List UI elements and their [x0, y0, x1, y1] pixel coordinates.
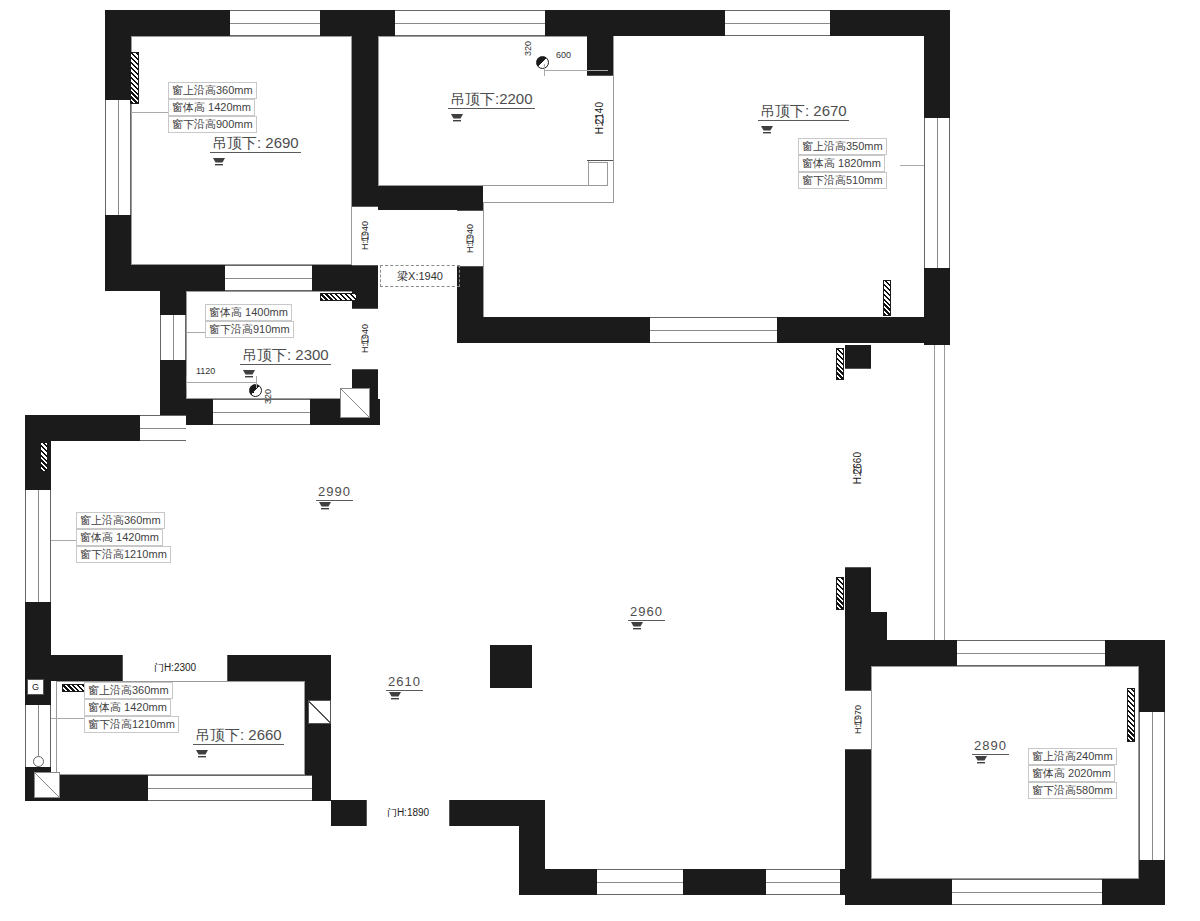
dim-row: 窗上沿高350mm [798, 138, 887, 155]
ceiling-label-text: 吊顶下: 2690 [210, 134, 301, 153]
column [490, 645, 532, 688]
opening [650, 317, 777, 343]
ceiling-lamp-icon [242, 365, 256, 375]
dim-row: 窗下沿高510mm [798, 172, 887, 189]
wall-corner-step [845, 612, 887, 640]
door-height-label: 门H:1940 [464, 224, 477, 253]
ceiling-label-text: 吊顶下: 2670 [758, 102, 849, 121]
door-opening-1940-b: 门H:1940 [457, 210, 483, 267]
ceiling-label-text: 吊顶下:2200 [448, 90, 535, 109]
leader-line [51, 540, 76, 541]
door-opening-2140: 门H:2140 [587, 75, 613, 161]
leader-line [51, 718, 84, 719]
ceiling-lamp-icon [212, 153, 226, 163]
door-height-label: 门H:1890 [387, 806, 429, 820]
dim-row: 窗下沿高900mm [168, 116, 257, 133]
leader-line [131, 112, 168, 113]
window-dimension-box: 窗上沿高350mm 窗体高 1820mm 窗下沿高510mm [798, 138, 887, 189]
door-height-label: 门H:2660 [851, 452, 865, 484]
shaft-symbol [308, 700, 331, 724]
ceiling-lamp-icon [450, 109, 464, 119]
window [952, 879, 1102, 905]
leader-line [186, 332, 205, 333]
window [957, 640, 1105, 666]
downlight-icon [536, 56, 549, 69]
door-height-label: 门H:2300 [154, 661, 196, 675]
opening [213, 399, 310, 425]
window [597, 869, 683, 895]
leader-line [900, 165, 924, 166]
corridor-glass-line [934, 343, 935, 640]
window [725, 10, 830, 36]
dim-row: 窗下沿高1210mm [84, 716, 179, 733]
opening [140, 415, 186, 441]
door-opening-1940-a: 门H:1940 [352, 206, 378, 266]
dim-320: 320 [523, 28, 533, 56]
beam-label: 梁X:1940 [380, 265, 460, 287]
wall-room2200-bottom [378, 186, 483, 210]
window [148, 775, 312, 801]
dim-line [186, 382, 257, 383]
height-label-2990: 2990 [316, 484, 353, 499]
radiator-hatch [883, 280, 891, 316]
ceiling-lamp-icon [974, 753, 988, 763]
beam-text: 梁X:1940 [397, 269, 443, 284]
dim-tick [256, 376, 257, 388]
ceiling-lamp-icon [760, 121, 774, 131]
dim-row: 窗上沿高360mm [84, 682, 173, 699]
dim-row: 窗体高 1820mm [798, 155, 885, 172]
wall-bottomright-left [845, 640, 871, 905]
window-dimension-box: 窗上沿高360mm 窗体高 1420mm 窗下沿高1210mm [76, 512, 171, 563]
radiator-hatch [1127, 688, 1135, 742]
ceiling-label-room2670: 吊顶下: 2670 [758, 102, 849, 121]
door-height-label: 门H:1970 [852, 705, 865, 734]
floor-plan: 门H:2140 门H:1940 门H:1940 门H:1940 门H:2300 … [0, 0, 1200, 921]
ceiling-label-room2300: 吊顶下: 2300 [240, 346, 331, 365]
corridor-glass-line [944, 343, 945, 640]
dim-row: 窗体高 1420mm [76, 529, 163, 546]
ceiling-lamp-icon [630, 619, 644, 629]
window [1139, 712, 1165, 860]
gas-marker-label: G [32, 682, 39, 692]
dim-row: 窗体高 1400mm [205, 304, 292, 321]
window-dimension-box: 窗上沿高360mm 窗体高 1420mm 窗下沿高900mm [168, 82, 257, 133]
dim-row: 窗体高 1420mm [84, 699, 171, 716]
height-label-2960: 2960 [628, 604, 665, 619]
dim-row: 窗下沿高910mm [205, 321, 294, 338]
ceiling-lamp-icon [388, 689, 402, 699]
door-opening-2300: 门H:2300 [122, 655, 228, 681]
dim-tick [544, 64, 545, 76]
circle-symbol [33, 756, 44, 767]
ceiling-label-room2200: 吊顶下:2200 [448, 90, 535, 109]
dim-tick [186, 376, 187, 388]
room-edge-line [613, 36, 614, 202]
corner-symbol [34, 772, 60, 798]
window [924, 118, 950, 268]
door-height-label: 门H:2140 [593, 102, 607, 134]
radiator-hatch [40, 442, 48, 472]
ceiling-label-bottomleft: 吊顶下: 2660 [193, 726, 284, 745]
door-opening-1940-c: 门H:1940 [352, 308, 378, 370]
ceiling-label-text: 吊顶下: 2300 [240, 346, 331, 365]
dim-row: 窗体高 1420mm [168, 99, 255, 116]
dim-320: 320 [263, 376, 273, 404]
ceiling-lamp-icon [195, 745, 209, 755]
window [766, 869, 840, 895]
ceiling-lamp-icon [318, 499, 332, 509]
radiator-hatch [836, 348, 844, 380]
window [25, 490, 51, 602]
radiator-hatch [320, 293, 357, 301]
door-leaf [588, 162, 608, 186]
height-label-2610: 2610 [386, 674, 423, 689]
dim-row: 窗下沿高580mm [1028, 782, 1117, 799]
dim-row: 窗上沿高360mm [168, 82, 257, 99]
dim-row: 窗上沿高360mm [76, 512, 165, 529]
dim-1120: 1120 [196, 366, 215, 376]
window [230, 10, 320, 36]
window-dimension-box: 窗体高 1400mm 窗下沿高910mm [205, 304, 294, 338]
window [105, 100, 131, 215]
gas-marker: G [27, 679, 44, 695]
dim-row: 窗体高 2020mm [1028, 765, 1115, 782]
window [225, 265, 312, 291]
room-edge-line [483, 202, 484, 317]
door-opening-1890: 门H:1890 [366, 800, 450, 826]
door-height-label: 门H:1940 [359, 324, 372, 353]
ceiling-label-bedroom1: 吊顶下: 2690 [210, 134, 301, 153]
dim-row: 窗上沿高240mm [1028, 748, 1117, 765]
door-height-label: 门H:1940 [359, 221, 372, 250]
room-edge-line [483, 202, 614, 203]
corner-symbol [340, 388, 370, 418]
dim-600: 600 [556, 50, 571, 60]
dim-row: 窗下沿高1210mm [76, 546, 171, 563]
radiator-hatch [836, 577, 844, 610]
dim-line [545, 70, 608, 71]
ceiling-label-text: 吊顶下: 2660 [193, 726, 284, 745]
door-opening-2660: 门H:2660 [845, 368, 871, 568]
door-opening-1970: 门H:1970 [845, 690, 871, 750]
window [160, 315, 186, 360]
window-dimension-box: 窗上沿高240mm 窗体高 2020mm 窗下沿高580mm [1028, 748, 1117, 799]
window-dimension-box: 窗上沿高360mm 窗体高 1420mm 窗下沿高1210mm [84, 682, 179, 733]
height-label-2890: 2890 [972, 738, 1009, 753]
radiator-hatch [130, 52, 139, 104]
